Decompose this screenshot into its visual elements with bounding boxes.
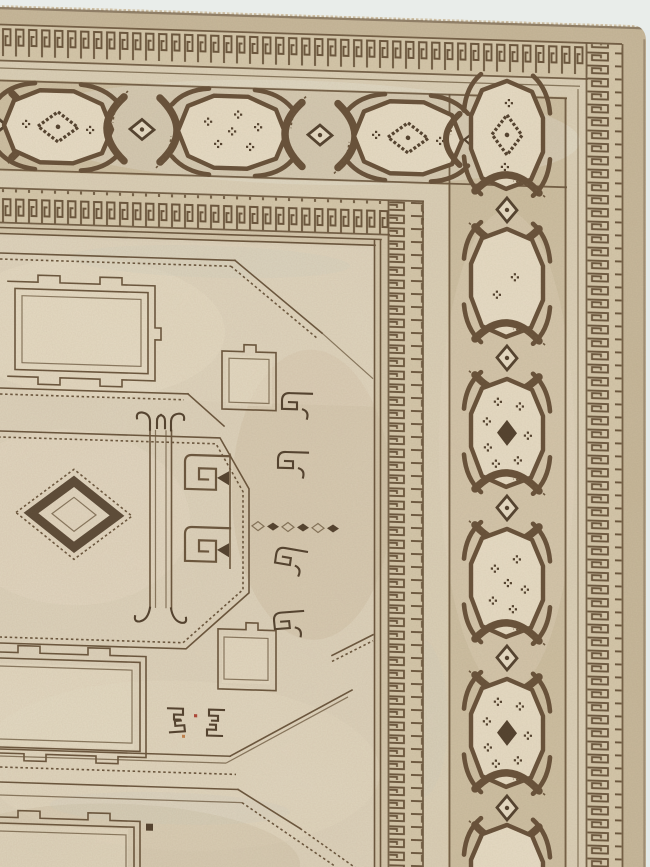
texture-grain (0, 5, 646, 867)
rug: Antique Khotan-style carpet, corner deta… (0, 3, 646, 867)
rug-photo: Antique Khotan-style carpet, corner deta… (0, 0, 650, 867)
rug-drawing: Antique Khotan-style carpet, corner deta… (0, 0, 650, 867)
photo-stage: Antique Khotan-style carpet, corner deta… (0, 0, 650, 867)
